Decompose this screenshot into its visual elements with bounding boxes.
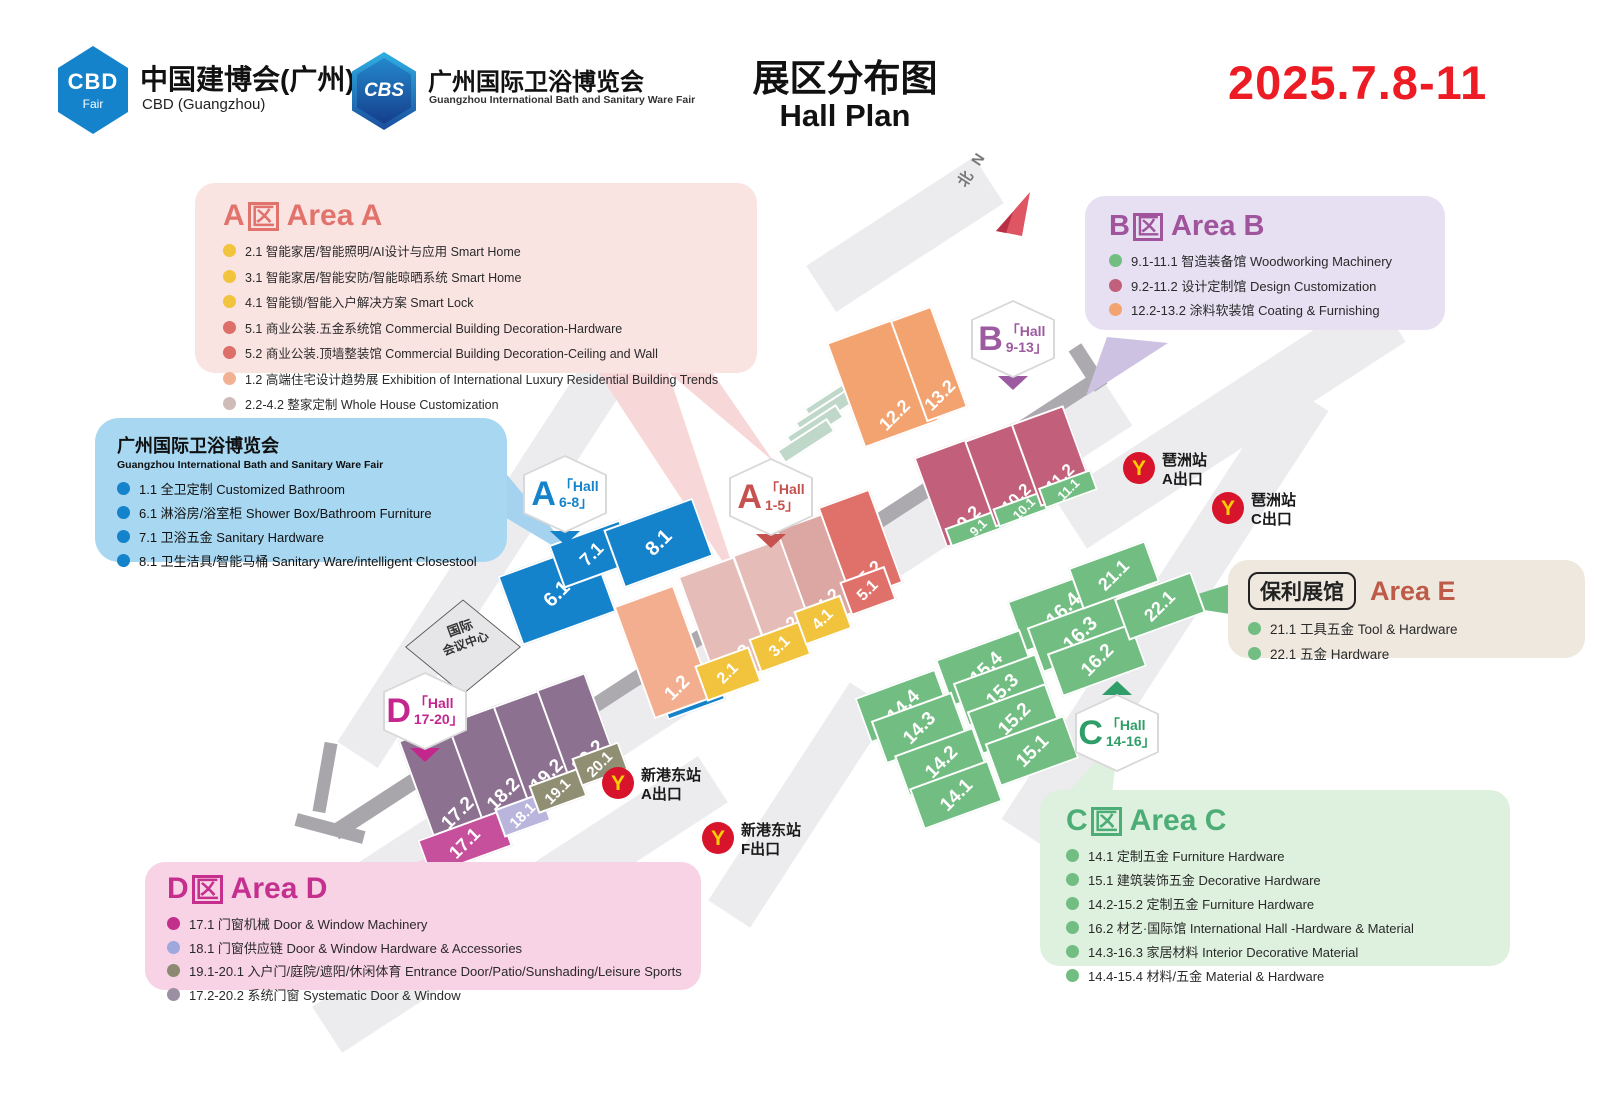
legend-dot (117, 530, 130, 543)
legend-bath-items: 1.1 全卫定制 Customized Bathroom6.1 淋浴房/浴室柜 … (117, 479, 507, 570)
legend-item: 4.1 智能锁/智能入户解决方案 Smart Lock (223, 292, 757, 311)
legend-item-label: 2.2-4.2 整家定制 Whole House Customization (245, 394, 499, 413)
hall-badge-inner: A「Hall1-5」 (731, 460, 811, 534)
hall-label: 17.1 (446, 824, 484, 862)
legend-area-d-title: D区 Area D (167, 872, 701, 906)
legend-item: 17.1 门窗机械 Door & Window Machinery (167, 914, 701, 933)
legend-dot (223, 321, 236, 334)
legend-item-label: 19.1-20.1 入户门/庭院/遮阳/休闲体育 Entrance Door/P… (189, 961, 682, 980)
legend-item: 14.3-16.3 家居材料 Interior Decorative Mater… (1066, 942, 1510, 961)
hall-badge-inner: C「Hall14-16」 (1077, 696, 1157, 770)
hall-badge-letter: B (978, 322, 1003, 356)
legend-dot (1066, 873, 1079, 886)
road-fork-prong (313, 742, 338, 813)
legend-dot (117, 506, 130, 519)
legend-area-b-items: 9.1-11.1 智造装备馆 Woodworking Machinery9.2-… (1109, 251, 1445, 319)
legend-dot (1109, 279, 1122, 292)
legend-item: 1.1 全卫定制 Customized Bathroom (117, 479, 507, 498)
hall-badge-range: 「Hall6-8」 (559, 478, 599, 510)
hall-badge-range: 「Hall17-20」 (414, 695, 464, 727)
legend-dot (223, 270, 236, 283)
legend-item-label: 9.1-11.1 智造装备馆 Woodworking Machinery (1131, 251, 1392, 270)
legend-area-d: D区 Area D 17.1 门窗机械 Door & Window Machin… (145, 862, 701, 990)
legend-item-label: 1.2 高端住宅设计趋势展 Exhibition of Internationa… (245, 369, 718, 388)
legend-item-label: 8.1 卫生洁具/智能马桶 Sanitary Ware/intelligent … (139, 551, 477, 570)
legend-item: 22.1 五金 Hardware (1248, 643, 1585, 663)
hall-label: 7.1 (577, 539, 607, 569)
legend-item-label: 2.1 智能家居/智能照明/AI设计与应用 Smart Home (245, 241, 521, 260)
legend-item-label: 17.2-20.2 系统门窗 Systematic Door & Window (189, 985, 461, 1004)
legend-item: 17.2-20.2 系统门窗 Systematic Door & Window (167, 985, 701, 1004)
legend-item: 5.2 商业公装.顶墙整装馆 Commercial Building Decor… (223, 343, 757, 362)
legend-item-label: 7.1 卫浴五金 Sanitary Hardware (139, 527, 324, 546)
hall-badge-inner: A「Hall6-8」 (525, 457, 605, 531)
legend-item-label: 18.1 门窗供应链 Door & Window Hardware & Acce… (189, 938, 522, 957)
cbd-logo-sub: Fair (83, 97, 104, 111)
hall-badge-letter: A (737, 480, 762, 514)
legend-item-label: 9.2-11.2 设计定制馆 Design Customization (1131, 276, 1376, 295)
cbs-title: 广州国际卫浴博览会 (428, 62, 644, 97)
metro-logo-icon: Y (1123, 452, 1155, 484)
hall-label: 9.1 (967, 516, 989, 538)
legend-dot (1066, 849, 1079, 862)
legend-item-label: 5.2 商业公装.顶墙整装馆 Commercial Building Decor… (245, 343, 658, 362)
legend-bath-fair: 广州国际卫浴博览会 Guangzhou International Bath a… (95, 418, 507, 562)
legend-area-e-title: 保利展馆 Area E (1248, 572, 1585, 610)
legend-dot (223, 346, 236, 359)
cbd-subtitle: CBD (Guangzhou) (142, 96, 265, 113)
hall-badge-inner: D「Hall17-20」 (385, 674, 465, 748)
legend-item: 15.1 建筑装饰五金 Decorative Hardware (1066, 870, 1510, 889)
hall-plan-poster: CBD Fair 中国建博会(广州) CBD (Guangzhou) CBS 广… (0, 0, 1597, 1116)
hall-label: 14.1 (936, 775, 976, 815)
legend-area-c: C区 Area C 14.1 定制五金 Furniture Hardware15… (1040, 790, 1510, 966)
legend-item-label: 6.1 淋浴房/浴室柜 Shower Box/Bathroom Furnitur… (139, 503, 432, 522)
hall-badge-letter: C (1078, 716, 1103, 750)
hall-badge-range: 「Hall1-5」 (765, 481, 805, 513)
legend-dot (223, 295, 236, 308)
hall-label: 22.1 (1141, 587, 1179, 625)
legend-dot (1066, 945, 1079, 958)
legend-dot (223, 397, 236, 410)
event-date: 2025.7.8-11 (1228, 55, 1487, 110)
legend-area-a-title: A区 Area A (223, 199, 757, 233)
legend-item-label: 14.4-15.4 材料/五金 Material & Hardware (1088, 966, 1324, 985)
legend-item-label: 17.1 门窗机械 Door & Window Machinery (189, 914, 427, 933)
legend-item: 2.2-4.2 整家定制 Whole House Customization (223, 394, 757, 413)
legend-dot (1066, 969, 1079, 982)
metro-logo-icon: Y (702, 822, 734, 854)
legend-item: 19.1-20.1 入户门/庭院/遮阳/休闲体育 Entrance Door/P… (167, 961, 701, 980)
metro-label: 新港东站A出口 (641, 767, 701, 805)
hall-label: 2.1 (714, 660, 741, 687)
legend-item: 8.1 卫生洁具/智能马桶 Sanitary Ware/intelligent … (117, 551, 507, 570)
legend-item: 2.1 智能家居/智能照明/AI设计与应用 Smart Home (223, 241, 757, 260)
legend-area-a-items: 2.1 智能家居/智能照明/AI设计与应用 Smart Home3.1 智能家居… (223, 241, 757, 413)
legend-item-label: 4.1 智能锁/智能入户解决方案 Smart Lock (245, 292, 474, 311)
legend-bath-subtitle: Guangzhou International Bath and Sanitar… (117, 459, 507, 471)
hall-badge-pointer (998, 376, 1028, 390)
hall-label: 12.2 (876, 396, 914, 434)
legend-item-label: 14.1 定制五金 Furniture Hardware (1088, 846, 1285, 865)
cbd-logo-text: CBD (68, 69, 119, 95)
hall-badge-pointer (1102, 681, 1132, 695)
legend-area-a: A区 Area A 2.1 智能家居/智能照明/AI设计与应用 Smart Ho… (195, 183, 757, 373)
legend-item: 18.1 门窗供应链 Door & Window Hardware & Acce… (167, 938, 701, 957)
hall-badge-letter: D (386, 694, 411, 728)
legend-area-b: B区 Area B 9.1-11.1 智造装备馆 Woodworking Mac… (1085, 196, 1445, 330)
legend-item: 5.1 商业公装.五金系统馆 Commercial Building Decor… (223, 318, 757, 337)
hall-badge-pointer (756, 534, 786, 548)
hall-label: 16.2 (1077, 640, 1117, 680)
metro-新港东站-F出口: Y新港东站F出口 (702, 822, 801, 860)
legend-item-label: 14.3-16.3 家居材料 Interior Decorative Mater… (1088, 942, 1358, 961)
legend-dot (167, 917, 180, 930)
legend-dot (223, 372, 236, 385)
legend-item: 1.2 高端住宅设计趋势展 Exhibition of Internationa… (223, 369, 757, 388)
legend-dot (167, 964, 180, 977)
metro-logo-icon: Y (602, 767, 634, 799)
metro-label: 琶洲站A出口 (1162, 452, 1207, 490)
cbd-fair-logo: CBD Fair (58, 46, 128, 134)
legend-dot (117, 482, 130, 495)
legend-item-label: 3.1 智能家居/智能安防/智能晾晒系统 Smart Home (245, 267, 521, 286)
legend-dot (167, 941, 180, 954)
legend-area-b-title: B区 Area B (1109, 210, 1445, 243)
cbs-logo-inner: CBS (357, 58, 411, 124)
legend-dot (117, 554, 130, 567)
hall-label: 19.1 (542, 775, 573, 806)
metro-新港东站-A出口: Y新港东站A出口 (602, 767, 701, 805)
cbd-title: 中国建博会(广州) (140, 58, 355, 98)
metro-琶洲站-A出口: Y琶洲站A出口 (1123, 452, 1207, 490)
legend-area-c-items: 14.1 定制五金 Furniture Hardware15.1 建筑装饰五金 … (1066, 846, 1510, 985)
hall-label: 5.1 (854, 577, 881, 604)
legend-dot (1109, 254, 1122, 267)
legend-dot (167, 988, 180, 1001)
page-title-en: Hall Plan (745, 98, 945, 134)
hall-badge-pointer (410, 748, 440, 762)
legend-dot (1248, 622, 1261, 635)
legend-bath-title: 广州国际卫浴博览会 (117, 432, 507, 458)
legend-item: 14.1 定制五金 Furniture Hardware (1066, 846, 1510, 865)
legend-item: 12.2-13.2 涂料软装馆 Coating & Furnishing (1109, 300, 1445, 319)
legend-item: 6.1 淋浴房/浴室柜 Shower Box/Bathroom Furnitur… (117, 503, 507, 522)
hall-label: 21.1 (1095, 556, 1133, 594)
legend-item: 14.4-15.4 材料/五金 Material & Hardware (1066, 966, 1510, 985)
metro-label: 琶洲站C出口 (1251, 492, 1296, 530)
hall-badge-range: 「Hall14-16」 (1106, 717, 1156, 749)
hall-badge-pointer (550, 531, 580, 545)
legend-item: 14.2-15.2 定制五金 Furniture Hardware (1066, 894, 1510, 913)
legend-dot (1109, 303, 1122, 316)
metro-label: 新港东站F出口 (741, 822, 801, 860)
hall-badge-range: 「Hall9-13」 (1006, 323, 1048, 355)
hall-label: 3.1 (766, 633, 793, 660)
hall-label: 8.1 (641, 526, 675, 560)
hall-label: 1.2 (661, 672, 693, 704)
legend-item-label: 22.1 五金 Hardware (1270, 643, 1389, 663)
hall-label: 18.1 (507, 799, 538, 830)
legend-dot (223, 244, 236, 257)
legend-dot (1066, 897, 1079, 910)
legend-item: 9.1-11.1 智造装备馆 Woodworking Machinery (1109, 251, 1445, 270)
hall-badge-letter: A (531, 477, 556, 511)
cbs-logo-text: CBS (364, 80, 404, 102)
hall-label: 15.1 (1012, 731, 1052, 771)
poly-hall-pill: 保利展馆 (1248, 572, 1356, 610)
legend-item: 9.2-11.2 设计定制馆 Design Customization (1109, 276, 1445, 295)
legend-item-label: 15.1 建筑装饰五金 Decorative Hardware (1088, 870, 1321, 889)
legend-area-d-items: 17.1 门窗机械 Door & Window Machinery18.1 门窗… (167, 914, 701, 1004)
legend-area-e: 保利展馆 Area E 21.1 工具五金 Tool & Hardware22.… (1228, 560, 1585, 658)
hall-badge-inner: B「Hall9-13」 (973, 302, 1053, 376)
legend-item: 3.1 智能家居/智能安防/智能晾晒系统 Smart Home (223, 267, 757, 286)
legend-item-label: 14.2-15.2 定制五金 Furniture Hardware (1088, 894, 1314, 913)
cbs-logo: CBS (352, 52, 416, 130)
legend-dot (1248, 647, 1261, 660)
metro-琶洲站-C出口: Y琶洲站C出口 (1212, 492, 1296, 530)
legend-area-e-items: 21.1 工具五金 Tool & Hardware22.1 五金 Hardwar… (1248, 618, 1585, 663)
legend-dot (1066, 921, 1079, 934)
legend-item-label: 21.1 工具五金 Tool & Hardware (1270, 618, 1458, 638)
hall-badge-B-9-13: B「Hall9-13」 (971, 300, 1055, 378)
legend-item: 21.1 工具五金 Tool & Hardware (1248, 618, 1585, 638)
legend-item: 7.1 卫浴五金 Sanitary Hardware (117, 527, 507, 546)
legend-item-label: 1.1 全卫定制 Customized Bathroom (139, 479, 345, 498)
legend-item-label: 5.1 商业公装.五金系统馆 Commercial Building Decor… (245, 318, 622, 337)
legend-item: 16.2 材艺·国际馆 International Hall -Hardware… (1066, 918, 1510, 937)
legend-item-label: 12.2-13.2 涂料软装馆 Coating & Furnishing (1131, 300, 1380, 319)
legend-area-c-title: C区 Area C (1066, 804, 1510, 838)
cbs-subtitle: Guangzhou International Bath and Sanitar… (429, 94, 695, 106)
metro-logo-icon: Y (1212, 492, 1244, 524)
hall-label: 13.2 (922, 376, 960, 414)
hall-label: 4.1 (809, 606, 836, 633)
page-title-zh: 展区分布图 (745, 48, 945, 102)
legend-item-label: 16.2 材艺·国际馆 International Hall -Hardware… (1088, 918, 1414, 937)
